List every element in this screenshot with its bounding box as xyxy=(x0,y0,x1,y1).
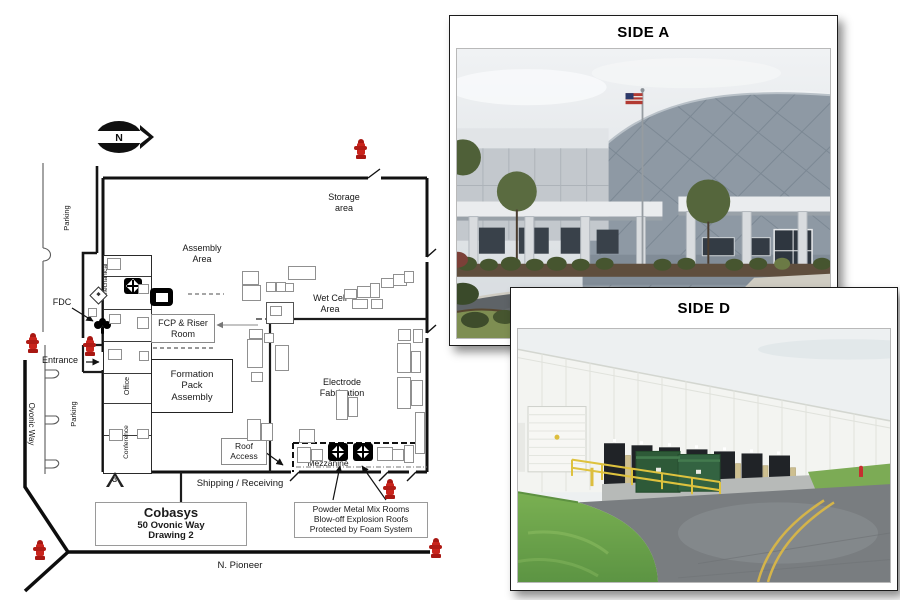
fire-hydrant-icon xyxy=(429,538,442,558)
fire-hydrant-icon xyxy=(33,540,46,560)
fire-hydrant-icon xyxy=(354,139,367,159)
drawing-title-box: Cobasys 50 Ovonic Way Drawing 2 xyxy=(95,502,247,546)
equipment-outline xyxy=(242,271,259,285)
photo-title-side-a: SIDE A xyxy=(450,24,837,41)
equipment-outline xyxy=(288,266,316,280)
equipment-outline xyxy=(336,390,348,420)
label-roof-access: Roof Access xyxy=(230,442,257,462)
fcp-riser-room-box: FCP & Riser Room xyxy=(151,314,215,343)
powder-room-note: Powder Metal Mix Rooms Blow-off Explosio… xyxy=(310,505,413,534)
label-fcp-riser: FCP & Riser Room xyxy=(158,318,208,339)
equipment-outline xyxy=(88,308,97,317)
equipment-outline xyxy=(352,299,368,309)
equipment-outline xyxy=(247,419,261,441)
equipment-outline xyxy=(370,283,380,298)
equipment-outline xyxy=(137,429,149,439)
company-name: Cobasys xyxy=(144,506,198,521)
equipment-outline xyxy=(411,351,421,373)
label-ovonic-way: Ovonic Way xyxy=(24,395,36,453)
equipment-outline xyxy=(137,317,149,329)
equipment-outline xyxy=(344,289,357,299)
fire-hydrant-icon xyxy=(383,479,396,499)
equipment-outline xyxy=(270,306,282,316)
equipment-outline xyxy=(413,329,423,343)
equipment-outline xyxy=(411,380,423,406)
equipment-outline xyxy=(397,343,411,373)
photo-side-d xyxy=(517,328,891,583)
label-assembly-area: Assembly Area xyxy=(170,243,234,264)
label-storage-area: Storage area xyxy=(312,192,376,213)
fire-hydrant-icon xyxy=(26,333,39,353)
equipment-outline xyxy=(311,449,323,461)
equipment-outline xyxy=(242,285,261,301)
formation-pack-room: Formation Pack Assembly xyxy=(151,359,233,413)
equipment-outline xyxy=(377,447,393,461)
equipment-outline xyxy=(275,345,289,371)
roof-access-box: Roof Access xyxy=(221,438,267,465)
equipment-outline xyxy=(348,397,358,417)
drawing-number: Drawing 2 xyxy=(148,531,193,542)
equipment-outline xyxy=(249,329,263,339)
site-plan: N Formation Pack Assembly FCP & Riser Ro… xyxy=(0,0,460,600)
equipment-outline xyxy=(404,271,414,283)
equipment-outline xyxy=(404,445,414,463)
side-d-photo-rendering xyxy=(518,329,890,582)
label-conference: Conference xyxy=(123,419,135,465)
label-shipping-receiving: Shipping / Receiving xyxy=(188,478,292,489)
powder-room-note-box: Powder Metal Mix Rooms Blow-off Explosio… xyxy=(294,502,428,538)
label-fdc: FDC xyxy=(48,297,76,308)
photo-card-side-d: SIDE D xyxy=(510,287,898,591)
equipment-outline xyxy=(266,282,276,292)
equipment-outline xyxy=(297,447,311,463)
explosion-room-icon xyxy=(328,443,348,461)
equipment-outline xyxy=(299,429,315,443)
label-entrance: Entrance xyxy=(36,355,84,366)
label-formation-pack: Formation Pack Assembly xyxy=(171,369,214,403)
equipment-outline xyxy=(415,412,425,454)
equipment-outline xyxy=(247,339,263,368)
gas-shutoff-label: G xyxy=(112,477,117,484)
north-arrow-icon: N xyxy=(96,121,142,153)
label-n-pioneer: N. Pioneer xyxy=(205,560,275,571)
equipment-outline xyxy=(139,351,149,361)
label-office: Office xyxy=(124,371,136,401)
equipment-outline xyxy=(397,377,411,409)
label-parking-lower: Parking xyxy=(70,397,82,431)
north-label: N xyxy=(96,132,142,144)
equipment-outline xyxy=(261,423,273,441)
equipment-outline xyxy=(109,429,123,441)
equipment-outline xyxy=(357,286,371,298)
equipment-outline xyxy=(285,283,294,292)
equipment-outline xyxy=(138,284,149,294)
fire-hydrant-icon xyxy=(83,336,96,356)
equipment-outline xyxy=(107,258,121,270)
equipment-outline xyxy=(108,349,122,360)
explosion-room-icon xyxy=(353,443,373,461)
equipment-outline xyxy=(109,314,121,324)
equipment-outline xyxy=(398,329,411,341)
photo-title-side-d: SIDE D xyxy=(511,300,897,317)
equipment-outline xyxy=(264,333,274,343)
fire-control-panel-icon xyxy=(150,288,173,306)
equipment-outline xyxy=(251,372,263,382)
equipment-outline xyxy=(371,299,383,309)
gas-shutoff-icon: G xyxy=(106,472,124,487)
label-parking-upper: Parking xyxy=(63,201,75,235)
equipment-outline xyxy=(392,449,404,461)
